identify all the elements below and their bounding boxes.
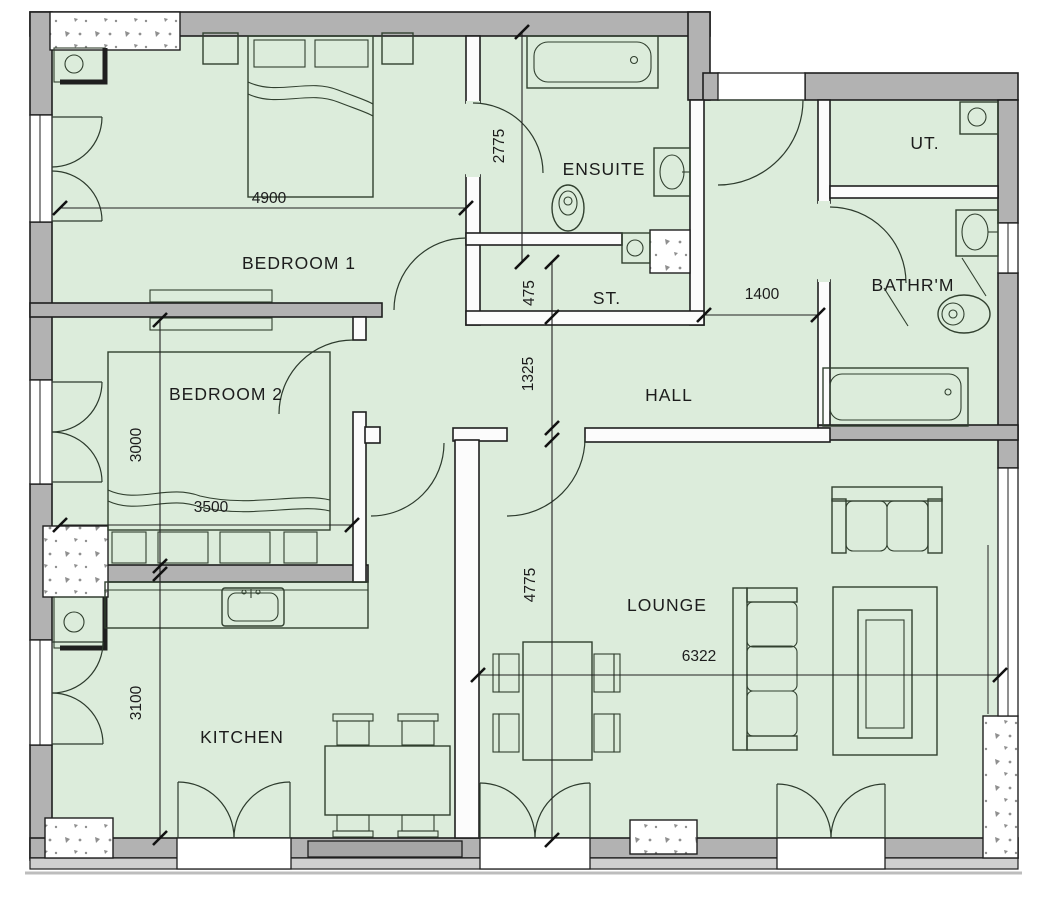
room-label-hall: HALL (645, 385, 693, 405)
window-right-bathroom (998, 223, 1018, 273)
room-label-utility: UT. (910, 133, 939, 153)
floor-plan-canvas: BEDROOM 1 BEDROOM 2 ENSUITE ST. HALL UT.… (0, 0, 1043, 900)
window-left-kitchen (30, 640, 52, 745)
floor-plan: BEDROOM 1 BEDROOM 2 ENSUITE ST. HALL UT.… (0, 0, 1043, 900)
dim-lounge-depth: 4775 (522, 568, 539, 602)
dim-bedroom2-depth: 3000 (128, 427, 145, 462)
room-label-bedroom1: BEDROOM 1 (242, 253, 356, 273)
dim-bedroom1-width: 4900 (252, 190, 287, 207)
dim-lounge-width: 6322 (682, 648, 716, 665)
room-label-ensuite: ENSUITE (563, 159, 646, 179)
dim-bedroom2-width: 3500 (194, 499, 229, 516)
window-left-bedroom1 (30, 115, 52, 222)
dim-hall-to-bath: 1400 (745, 286, 780, 303)
dim-store-depth: 475 (521, 280, 538, 306)
dim-ensuite-depth: 2775 (491, 129, 508, 163)
window-bottom-kitchen (308, 841, 462, 857)
dim-hall-depth: 1325 (520, 357, 537, 391)
window-left-bedroom2 (30, 380, 52, 484)
room-label-store: ST. (593, 288, 621, 308)
room-label-kitchen: KITCHEN (200, 727, 284, 747)
room-label-bedroom2: BEDROOM 2 (169, 384, 283, 404)
dim-kitchen-depth: 3100 (128, 685, 145, 720)
room-label-lounge: LOUNGE (627, 595, 707, 615)
room-label-bathroom: BATHR'M (872, 275, 955, 295)
